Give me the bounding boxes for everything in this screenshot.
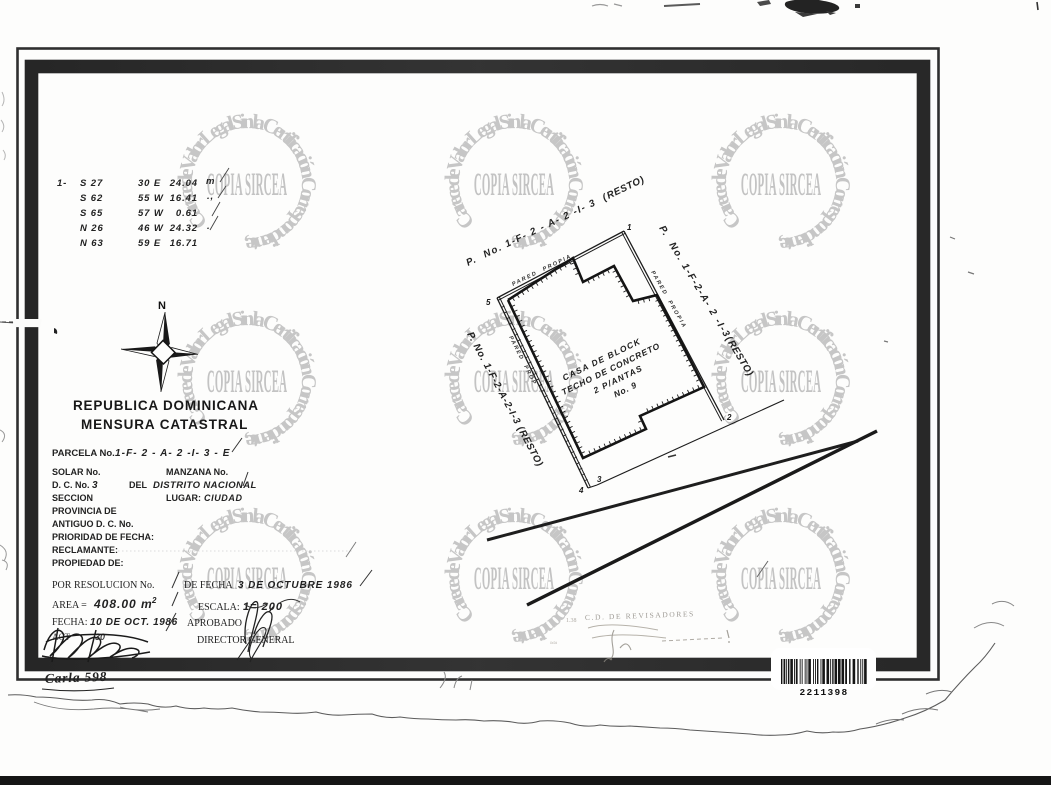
svg-text:16.41: 16.41 (170, 193, 198, 204)
svg-text:24.04: 24.04 (169, 178, 198, 189)
svg-text:COPIA SIRCEA: COPIA SIRCEA (207, 364, 287, 400)
svg-text:COPIA SIRCEA: COPIA SIRCEA (207, 561, 287, 597)
svg-text:4: 4 (578, 486, 584, 495)
svg-text:COPIA SIRCEA: COPIA SIRCEA (474, 167, 554, 203)
svg-text:POR RESOLUCION No.: POR RESOLUCION No. (52, 580, 155, 591)
svg-text:3: 3 (597, 475, 602, 484)
svg-text:.,: ., (207, 191, 214, 202)
svg-text:COPIA SIRCEA: COPIA SIRCEA (741, 167, 821, 203)
svg-text:59 E: 59 E (138, 238, 161, 249)
svg-text:COPIA SIRCEA: COPIA SIRCEA (207, 167, 287, 203)
svg-text:0.61: 0.61 (176, 208, 198, 219)
svg-text:SOLAR No.: SOLAR No. (52, 467, 101, 477)
svg-text:S 62: S 62 (80, 193, 103, 204)
svg-text:Carla 598: Carla 598 (45, 669, 108, 686)
svg-text:MANZANA No.: MANZANA No. (166, 467, 228, 477)
svg-text:ESCALA:: ESCALA: (198, 602, 240, 613)
svg-text:LUGAR:: LUGAR: (166, 493, 201, 503)
svg-text:PRIORIDAD DE FECHA:: PRIORIDAD DE FECHA: (52, 532, 154, 542)
svg-text:m: m (206, 176, 215, 187)
svg-text:2: 2 (726, 413, 732, 422)
svg-text:N 63: N 63 (80, 238, 104, 249)
svg-text:30 E: 30 E (138, 178, 161, 189)
svg-text:PARCELA No.: PARCELA No. (52, 448, 115, 459)
svg-text:S 27: S 27 (80, 178, 103, 189)
svg-text:1-F- 2 - A- 2 -I- 3 - E: 1-F- 2 - A- 2 -I- 3 - E (115, 448, 231, 459)
svg-text:1: 1 (627, 223, 632, 232)
svg-text:DE FECHA: DE FECHA (184, 580, 233, 591)
svg-text:1.38: 1.38 (566, 618, 577, 624)
svg-text:2211398: 2211398 (799, 687, 848, 698)
svg-text:3 DE OCTUBRE 1986: 3 DE OCTUBRE 1986 (238, 580, 353, 591)
svg-text:.: . (207, 221, 211, 232)
svg-text:REPUBLICA DOMINICANA: REPUBLICA DOMINICANA (73, 398, 259, 413)
svg-text:57 W: 57 W (138, 208, 164, 219)
svg-text:2: 2 (151, 596, 157, 605)
svg-text:10 DE OCT. 1986: 10 DE OCT. 1986 (90, 617, 178, 628)
svg-text:ANTIGUO D. C. No.: ANTIGUO D. C. No. (52, 519, 134, 529)
svg-text:N: N (158, 300, 166, 312)
svg-text:FECHA:: FECHA: (52, 617, 88, 628)
svg-text:PROVINCIA DE: PROVINCIA DE (52, 506, 117, 516)
svg-text:RECLAMANTE:: RECLAMANTE: (52, 545, 118, 555)
svg-text:24.32: 24.32 (169, 223, 198, 234)
svg-text:1-: 1- (57, 178, 67, 189)
svg-text:16.71: 16.71 (170, 238, 198, 249)
svg-text:55 W: 55 W (138, 193, 164, 204)
svg-text:MENSURA CATASTRAL: MENSURA CATASTRAL (81, 417, 248, 432)
svg-text:SECCION: SECCION (52, 493, 93, 503)
svg-text:DEL: DEL (129, 480, 148, 490)
svg-text:408.00 m: 408.00 m (93, 597, 153, 611)
svg-text:≈≈: ≈≈ (550, 640, 558, 647)
svg-text:DISTRITO NACIONAL: DISTRITO NACIONAL (153, 480, 257, 491)
svg-text:COPIA SIRCEA: COPIA SIRCEA (474, 561, 554, 597)
svg-text:PROPIEDAD DE:: PROPIEDAD DE: (52, 558, 124, 568)
svg-text:S 65: S 65 (80, 208, 103, 219)
svg-text:3: 3 (92, 480, 98, 491)
svg-text:AREA =: AREA = (52, 600, 87, 611)
svg-text:46 W: 46 W (137, 223, 164, 234)
svg-text:COPIA SIRCEA: COPIA SIRCEA (741, 561, 821, 597)
svg-text:D. C. No.: D. C. No. (52, 480, 90, 490)
svg-text:CIUDAD: CIUDAD (204, 493, 243, 503)
svg-text:5: 5 (486, 298, 491, 307)
svg-text:N 26: N 26 (80, 223, 104, 234)
svg-text:APROBADO: APROBADO (187, 618, 242, 629)
svg-text:DIRECTOR GENERAL: DIRECTOR GENERAL (197, 635, 294, 646)
